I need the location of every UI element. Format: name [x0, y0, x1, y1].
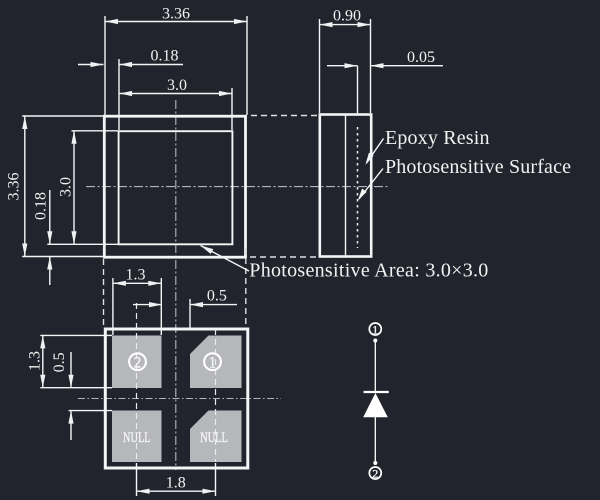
svg-text:2: 2: [372, 466, 378, 480]
svg-text:1.8: 1.8: [166, 474, 186, 491]
svg-text:3.0: 3.0: [57, 177, 74, 197]
svg-text:Epoxy Resin: Epoxy Resin: [385, 127, 490, 149]
svg-text:1.3: 1.3: [126, 266, 146, 283]
svg-text:0.5: 0.5: [51, 352, 68, 372]
svg-text:1: 1: [372, 322, 378, 336]
svg-text:NULL: NULL: [200, 430, 228, 446]
svg-text:Photosensitive Surface: Photosensitive Surface: [385, 156, 571, 178]
svg-text:1: 1: [209, 354, 217, 371]
svg-text:2: 2: [134, 354, 142, 371]
svg-text:0.05: 0.05: [407, 49, 435, 66]
svg-text:3.36: 3.36: [6, 173, 23, 201]
svg-text:NULL: NULL: [123, 430, 151, 446]
svg-text:0.18: 0.18: [151, 48, 179, 65]
svg-text:3.0: 3.0: [167, 77, 187, 94]
svg-text:3.36: 3.36: [162, 6, 190, 23]
svg-text:1.3: 1.3: [27, 351, 44, 371]
svg-text:0.18: 0.18: [32, 192, 49, 220]
svg-text:0.5: 0.5: [207, 288, 227, 305]
svg-text:0.90: 0.90: [333, 8, 361, 25]
svg-text:Photosensitive Area: 3.0×3.0: Photosensitive Area: 3.0×3.0: [249, 260, 488, 282]
